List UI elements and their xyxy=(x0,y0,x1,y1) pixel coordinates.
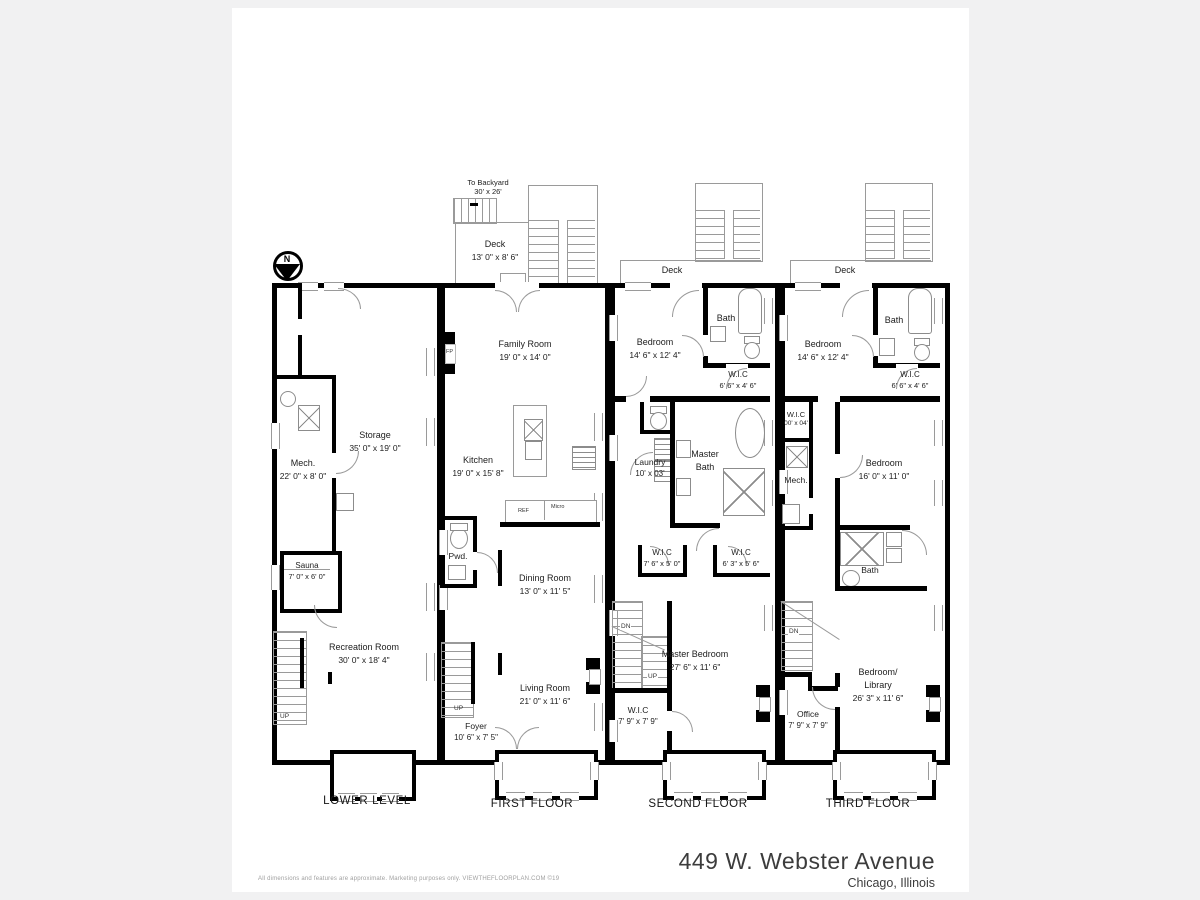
outdoor-stairs xyxy=(695,183,763,262)
fridge-label: REF xyxy=(518,508,529,515)
window xyxy=(594,703,603,731)
deck-edge xyxy=(790,260,931,261)
window xyxy=(779,315,788,341)
outdoor-stairs xyxy=(865,183,933,262)
outdoor-stairs xyxy=(528,185,598,286)
toilet xyxy=(650,412,667,430)
wall xyxy=(835,402,840,454)
wall xyxy=(809,442,813,498)
wall xyxy=(703,283,708,335)
room-label-office: Office7' 9" x 7' 9" xyxy=(788,708,827,732)
fireplace-box xyxy=(759,697,771,712)
water-heater xyxy=(280,391,296,407)
room-label-wic-lower: W.I.C7' 9" x 7' 9" xyxy=(618,704,657,728)
window xyxy=(271,423,280,449)
stairs-up-label: UP xyxy=(280,713,289,720)
wall xyxy=(667,731,672,752)
wall xyxy=(500,522,600,527)
bathtub xyxy=(908,288,932,334)
disclaimer-text: All dimensions and features are approxim… xyxy=(258,876,559,882)
wall xyxy=(835,673,840,687)
island-sink xyxy=(524,419,543,441)
stair-divider xyxy=(894,210,904,259)
room-label-library: Bedroom/Library26' 3" x 11' 6" xyxy=(853,666,904,705)
room-label-laundry: Laundry10' x 03' xyxy=(635,456,666,480)
bay-window xyxy=(330,750,416,801)
vanity-sink xyxy=(886,548,902,563)
counter-divider xyxy=(544,501,545,520)
north-pointer xyxy=(274,264,300,281)
sink xyxy=(879,338,895,356)
floor-plan-lower-level: UP Storage35' 0" x 19' 0" Mech.22' 0" x … xyxy=(272,283,433,816)
wall xyxy=(440,516,477,520)
fireplace-wall xyxy=(756,685,770,697)
wall xyxy=(713,573,770,577)
mech-fixture xyxy=(782,504,800,524)
bay-window xyxy=(495,750,598,800)
wall xyxy=(298,335,302,378)
wall xyxy=(300,638,304,688)
room-label-powder: Pwd. xyxy=(449,550,468,563)
wall xyxy=(780,526,813,530)
stairs-dn-label: DN xyxy=(788,628,799,635)
address-line2: Chicago, Illinois xyxy=(560,876,935,890)
shower xyxy=(840,532,884,566)
window xyxy=(271,565,280,590)
window xyxy=(439,530,448,555)
wall xyxy=(835,586,927,591)
wall xyxy=(471,642,475,704)
room-label-bath: Bath xyxy=(885,314,904,327)
window xyxy=(426,418,435,446)
door-opening xyxy=(670,282,702,290)
bay-window xyxy=(833,750,936,800)
address-line1: 449 W. Webster Avenue xyxy=(560,848,935,875)
stairs-dn-label: DN xyxy=(620,623,631,630)
deck-edge xyxy=(620,260,621,283)
door-opening xyxy=(626,396,650,402)
wall xyxy=(835,525,910,530)
wall xyxy=(667,693,672,711)
room-label-master-bath: MasterBath xyxy=(691,448,719,474)
wall xyxy=(873,283,878,335)
window xyxy=(934,420,943,446)
wall xyxy=(638,573,687,577)
toilet-tank xyxy=(450,523,468,531)
room-label-wic-left: W.I.C7' 6" x 5' 0" xyxy=(644,547,681,569)
wall xyxy=(498,550,502,586)
window xyxy=(928,762,937,780)
stairs-up-label: UP xyxy=(454,705,463,712)
deck-edge xyxy=(455,222,529,223)
room-label-living: Living Room21' 0" x 11' 6" xyxy=(520,682,571,708)
floor-title-lower: LOWER LEVEL xyxy=(323,795,411,807)
room-label-deck: Deck xyxy=(835,264,856,277)
window xyxy=(764,605,773,631)
wall xyxy=(328,672,332,684)
wall xyxy=(440,584,477,588)
window xyxy=(758,762,767,780)
room-label-dining: Dining Room13' 0" x 11' 5" xyxy=(519,572,571,598)
washer-fixture xyxy=(298,405,320,431)
vanity-sink xyxy=(676,478,691,496)
deck-edge xyxy=(455,222,456,283)
wall xyxy=(610,688,672,693)
window xyxy=(590,762,599,780)
room-label-bedroom: Bedroom14' 6" x 12' 4" xyxy=(797,338,848,364)
room-label-storage: Storage35' 0" x 19' 0" xyxy=(349,429,400,455)
deck-edge xyxy=(790,260,791,283)
floor-title-second: SECOND FLOOR xyxy=(648,798,747,810)
wall xyxy=(272,375,336,379)
room-label-deck: Deck xyxy=(662,264,683,277)
fireplace-box xyxy=(929,697,941,712)
to-backyard-label: To Backyard30' x 26' xyxy=(467,178,508,196)
room-label-family: Family Room19' 0" x 14' 0" xyxy=(498,338,551,364)
room-label-wic-bedroom: W.I.C6' 6" x 4' 6" xyxy=(892,369,929,391)
window xyxy=(594,413,603,441)
stair-divider xyxy=(724,210,734,259)
toilet xyxy=(914,344,930,361)
backyard-stairs xyxy=(453,198,497,224)
shower xyxy=(723,468,765,516)
bathtub xyxy=(738,288,762,334)
wall xyxy=(670,402,675,525)
room-label-master-bedroom: Master Bedroom27' 6" x 11' 6" xyxy=(662,648,729,674)
floor-title-first: FIRST FLOOR xyxy=(491,798,573,810)
wall xyxy=(670,523,720,528)
window xyxy=(662,762,671,780)
window xyxy=(934,298,943,324)
room-label-bedroom: Bedroom14' 6" x 12' 4" xyxy=(629,336,680,362)
window xyxy=(594,575,603,603)
sump-fixture xyxy=(336,493,354,511)
wall xyxy=(298,283,302,319)
toilet xyxy=(842,570,860,587)
stair-tick xyxy=(470,203,478,206)
toilet xyxy=(450,528,468,549)
wall xyxy=(835,528,840,591)
vanity-sink xyxy=(886,532,902,547)
window xyxy=(609,435,618,461)
window xyxy=(439,585,448,610)
toilet xyxy=(744,342,760,359)
fireplace-box xyxy=(589,669,601,685)
room-label-bedroom-mid: Bedroom16' 0" x 11' 0" xyxy=(859,457,910,483)
room-label-deck: Deck13' 0" x 8' 6" xyxy=(472,238,519,264)
window xyxy=(625,282,651,291)
north-arrow-icon: N xyxy=(272,251,302,285)
room-label-wic-right: W.I.C6' 3" x 5' 6" xyxy=(723,547,760,569)
window xyxy=(832,762,841,780)
wall xyxy=(809,402,813,442)
door-opening xyxy=(495,282,539,290)
room-label-kitchen: Kitchen19' 0" x 15' 8" xyxy=(452,454,503,480)
fireplace-label: FP xyxy=(446,349,453,356)
wall xyxy=(332,375,336,453)
wall xyxy=(780,396,940,402)
window xyxy=(609,315,618,341)
north-label: N xyxy=(272,254,302,264)
window xyxy=(426,583,435,611)
wall xyxy=(835,707,840,752)
sink xyxy=(710,326,726,342)
room-label-bath-mid: Bath xyxy=(861,564,879,577)
room-label-sauna: Sauna7' 0" x 6' 0" xyxy=(289,560,326,582)
freestanding-tub xyxy=(735,408,765,458)
sink xyxy=(448,565,466,580)
floor-plan-first-floor: To Backyard30' x 26' Deck13' 0" x 8' 6" … xyxy=(440,180,601,820)
fireplace-wall xyxy=(445,332,455,344)
wall xyxy=(473,516,477,552)
window xyxy=(764,480,773,506)
wall xyxy=(667,601,672,689)
floor-plan-second-floor: Deck Bath W.I.C6' 6" x 4' 6" Laundry10' … xyxy=(610,180,771,820)
room-label-wic-small: W.I.C00' x 04' xyxy=(784,410,808,428)
wall xyxy=(332,478,336,555)
deck-edge xyxy=(620,260,761,261)
stair-divider xyxy=(558,220,568,283)
microwave-label: Micro xyxy=(551,504,564,511)
window xyxy=(934,605,943,631)
room-label-foyer: Foyer10' 6" x 7' 5" xyxy=(454,720,498,744)
kitchen-counter: REF Micro xyxy=(505,500,597,523)
window xyxy=(764,420,773,446)
bay-window xyxy=(663,750,766,800)
island-cooktop xyxy=(525,441,542,460)
fireplace-wall xyxy=(926,685,940,697)
door-opening xyxy=(840,282,872,290)
room-label-recreation: Recreation Room30' 0" x 18' 4" xyxy=(329,641,399,667)
window xyxy=(779,690,788,715)
window xyxy=(764,298,773,324)
vanity-sink xyxy=(676,440,691,458)
room-label-bath: Bath xyxy=(717,312,736,325)
window xyxy=(494,762,503,780)
stairs-up-label: UP xyxy=(647,673,658,680)
room-label-mech: Mech.22' 0" x 8' 0" xyxy=(280,457,327,483)
mech-equipment xyxy=(786,446,808,468)
floor-plan-third-floor: Deck Bath W.I.C6' 6" x 4' 6" W.I.C00' x … xyxy=(780,180,941,820)
wall xyxy=(640,430,674,434)
window xyxy=(426,348,435,376)
window xyxy=(934,480,943,506)
room-label-wic-bedroom: W.I.C6' 6" x 4' 6" xyxy=(720,369,757,391)
window xyxy=(609,720,618,742)
range-fixture xyxy=(572,446,596,470)
wall xyxy=(835,478,840,528)
window xyxy=(426,653,435,681)
room-label-mech: Mech. xyxy=(784,474,807,487)
wall xyxy=(498,653,502,675)
floor-title-third: THIRD FLOOR xyxy=(826,798,911,810)
stairs xyxy=(612,601,643,691)
window xyxy=(795,282,821,291)
